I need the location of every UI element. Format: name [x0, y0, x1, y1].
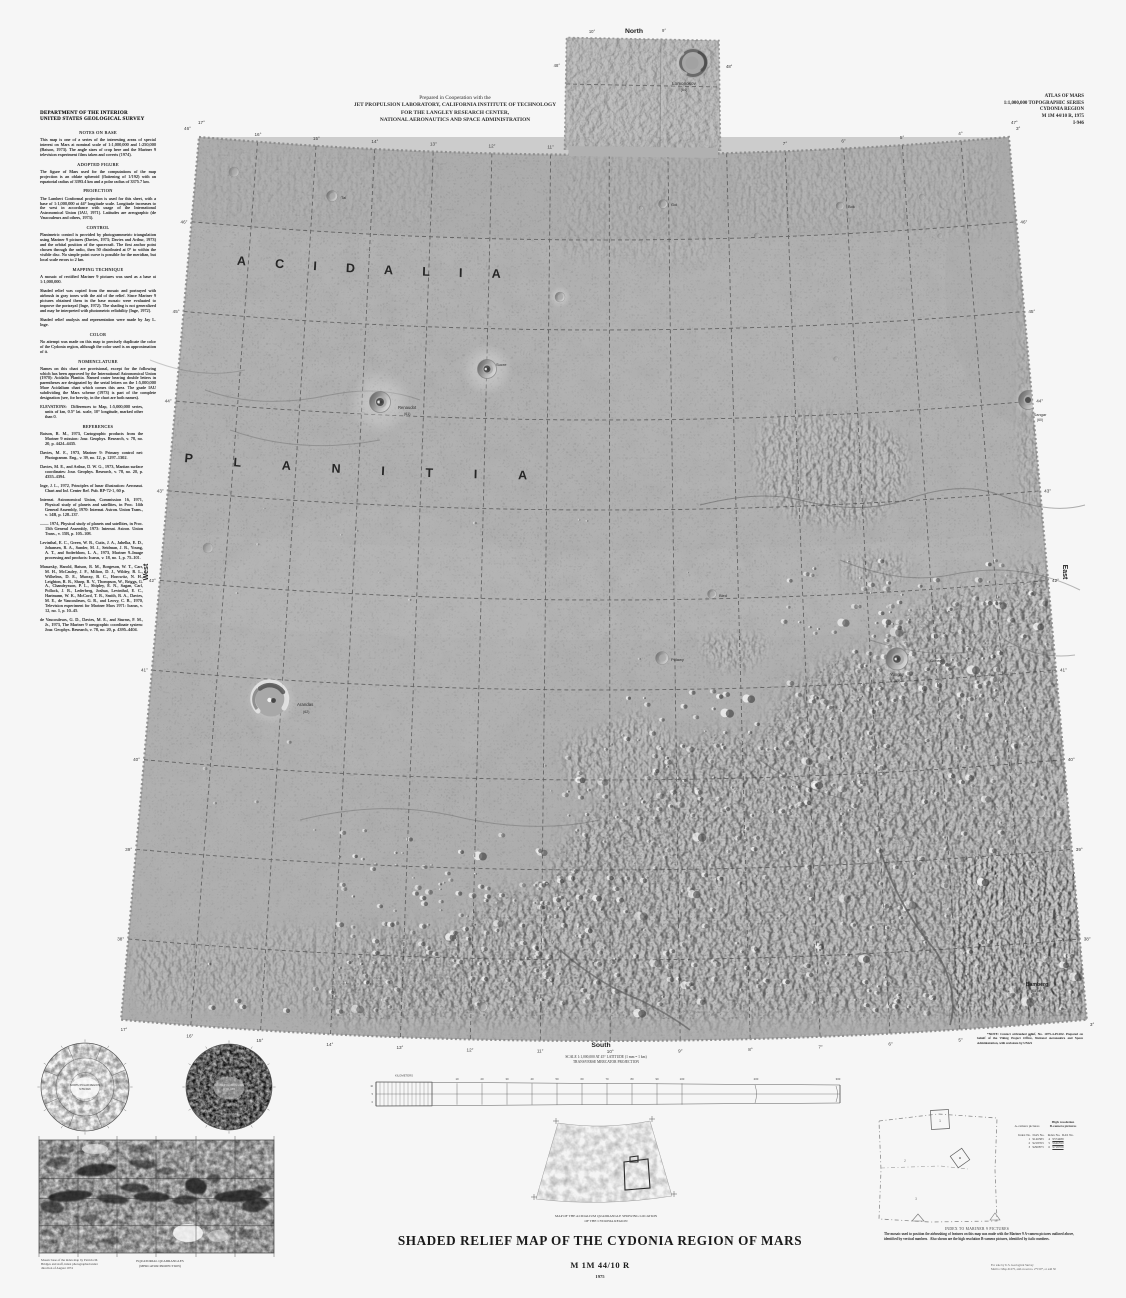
- svg-text:South: South: [591, 1042, 610, 1049]
- svg-text:(61): (61): [404, 412, 410, 416]
- svg-text:SOUTH POLAR REGION: SOUTH POLAR REGION: [214, 1083, 244, 1087]
- svg-text:Renaudot: Renaudot: [398, 405, 417, 410]
- svg-text:(64): (64): [681, 88, 688, 92]
- svg-text:48°: 48°: [554, 63, 561, 68]
- svg-text:8°: 8°: [748, 1047, 753, 1052]
- svg-text:5°: 5°: [900, 135, 905, 140]
- svg-text:M 5M -90/0: M 5M -90/0: [223, 1088, 236, 1091]
- svg-text:44°: 44°: [165, 399, 172, 404]
- svg-text:(63): (63): [894, 679, 900, 683]
- svg-text:100: 100: [680, 1077, 685, 1081]
- svg-text:12°: 12°: [467, 1047, 474, 1052]
- svg-text:4°: 4°: [958, 131, 963, 136]
- svg-text:(60): (60): [1037, 418, 1043, 422]
- svg-text:11°: 11°: [537, 1049, 544, 1054]
- svg-text:17°: 17°: [121, 1027, 128, 1032]
- svg-text:Bok: Bok: [848, 204, 855, 209]
- svg-text:Arandas: Arandas: [297, 702, 314, 707]
- svg-text:38°: 38°: [1084, 937, 1091, 942]
- svg-text:Gol: Gol: [671, 202, 677, 207]
- svg-text:48°: 48°: [726, 64, 733, 69]
- svg-text:45°: 45°: [1028, 309, 1035, 314]
- svg-text:KILOMETERS: KILOMETERS: [395, 1074, 413, 1078]
- svg-text:Gilbert: Gilbert: [930, 658, 943, 663]
- svg-text:Lomonosov: Lomonosov: [672, 81, 696, 86]
- svg-text:Pulawy: Pulawy: [671, 657, 684, 662]
- svg-text:East: East: [1061, 565, 1068, 580]
- svg-text:Sucre: Sucre: [496, 362, 507, 367]
- svg-text:5°: 5°: [958, 1037, 963, 1042]
- svg-text:M 5M 90/0: M 5M 90/0: [79, 1088, 91, 1091]
- svg-text:16°: 16°: [186, 1033, 193, 1038]
- svg-text:Sangar: Sangar: [1034, 412, 1048, 417]
- svg-text:20: 20: [480, 1077, 484, 1081]
- svg-text:38°: 38°: [117, 937, 124, 942]
- svg-text:(65 km): (65 km): [1031, 989, 1043, 993]
- svg-text:7°: 7°: [818, 1045, 823, 1050]
- svg-text:46°: 46°: [1020, 219, 1027, 224]
- svg-text:200: 200: [754, 1077, 759, 1081]
- svg-text:NORTH POLAR REGION: NORTH POLAR REGION: [70, 1083, 100, 1087]
- svg-text:43°: 43°: [1044, 488, 1051, 493]
- svg-text:9°: 9°: [678, 1048, 683, 1053]
- svg-text:45°: 45°: [173, 309, 180, 314]
- svg-text:16°: 16°: [254, 132, 261, 137]
- svg-text:80: 80: [630, 1077, 634, 1081]
- svg-text:60: 60: [580, 1077, 584, 1081]
- svg-text:17°: 17°: [198, 120, 205, 125]
- svg-text:6°: 6°: [841, 139, 846, 144]
- svg-text:3°: 3°: [1090, 1022, 1094, 1027]
- svg-text:300: 300: [836, 1077, 841, 1081]
- svg-text:Tal: Tal: [341, 195, 346, 200]
- svg-text:90: 90: [655, 1077, 659, 1081]
- svg-text:7°: 7°: [783, 141, 788, 146]
- svg-text:10°: 10°: [607, 1049, 614, 1054]
- svg-text:30: 30: [505, 1077, 509, 1081]
- svg-text:10: 10: [455, 1077, 459, 1081]
- svg-text:70: 70: [605, 1077, 609, 1081]
- svg-text:40: 40: [530, 1077, 534, 1081]
- svg-text:15°: 15°: [256, 1038, 263, 1043]
- svg-text:11°: 11°: [547, 144, 554, 149]
- svg-text:6°: 6°: [888, 1042, 893, 1047]
- svg-text:46°: 46°: [184, 126, 191, 131]
- svg-text:North: North: [625, 28, 643, 35]
- svg-text:15°: 15°: [313, 136, 320, 141]
- svg-text:Bamberg: Bamberg: [1026, 982, 1049, 988]
- svg-text:13°: 13°: [430, 142, 437, 147]
- svg-text:39°: 39°: [1076, 847, 1083, 852]
- svg-text:39°: 39°: [125, 847, 132, 852]
- svg-text:14°: 14°: [326, 1042, 333, 1047]
- svg-text:40°: 40°: [1068, 757, 1075, 762]
- svg-text:13°: 13°: [396, 1045, 403, 1050]
- svg-text:Yungay: Yungay: [890, 672, 905, 677]
- svg-text:1: 1: [939, 1119, 941, 1123]
- svg-text:50: 50: [555, 1077, 559, 1081]
- svg-text:43°: 43°: [157, 488, 164, 493]
- svg-text:44°: 44°: [1036, 399, 1043, 404]
- svg-text:(62): (62): [303, 710, 309, 714]
- svg-text:12°: 12°: [489, 143, 496, 148]
- svg-text:14°: 14°: [371, 139, 378, 144]
- svg-text:3: 3: [915, 1197, 917, 1201]
- svg-text:Bled: Bled: [719, 593, 727, 598]
- svg-text:42°: 42°: [1052, 578, 1059, 583]
- svg-text:41°: 41°: [1060, 668, 1067, 673]
- svg-text:9°: 9°: [662, 28, 666, 33]
- svg-text:10°: 10°: [589, 29, 596, 34]
- svg-text:41°: 41°: [141, 668, 148, 673]
- svg-text:46°: 46°: [181, 219, 188, 224]
- svg-text:40°: 40°: [133, 757, 140, 762]
- svg-text:2: 2: [904, 1159, 906, 1163]
